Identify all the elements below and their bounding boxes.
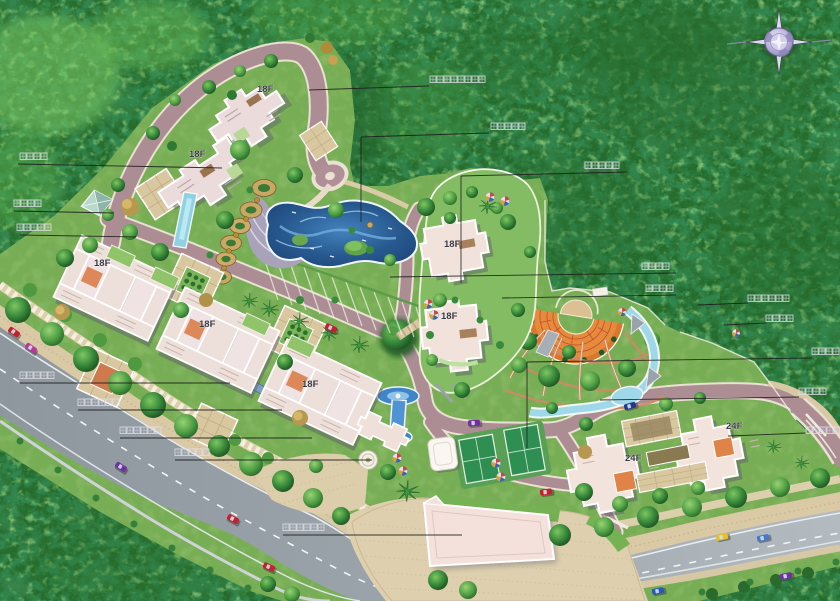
svg-text:24F: 24F [625,453,642,464]
svg-text:18F: 18F [189,149,206,160]
svg-text:18F: 18F [199,319,216,330]
svg-text:18F: 18F [441,311,458,322]
svg-text:24F: 24F [726,421,743,432]
svg-text:18F: 18F [257,84,274,95]
svg-text:18F: 18F [444,239,461,250]
svg-text:18F: 18F [302,379,319,390]
svg-text:18F: 18F [94,258,111,269]
